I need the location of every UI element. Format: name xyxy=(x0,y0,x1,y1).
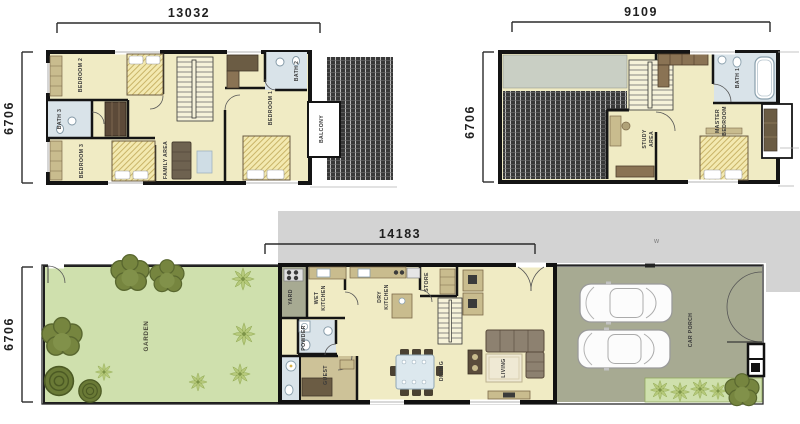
room-label-master-line2: BEDROOM xyxy=(722,106,728,136)
room-label-bath2: BATH 2 xyxy=(294,61,300,81)
dim-line-width-second-floor xyxy=(512,22,770,32)
dim-line-height-ground-floor xyxy=(22,267,33,402)
car-2 xyxy=(578,328,670,371)
meter-box xyxy=(748,344,764,376)
plan-ground-floor: w 14183 6706 xyxy=(2,211,800,406)
plan-second-floor: 9109 6706 xyxy=(463,5,799,186)
dim-width-ground-floor: 14183 xyxy=(379,227,421,241)
room-label-wet-kitchen-line2: KITCHEN xyxy=(321,285,327,311)
car-1 xyxy=(580,282,672,325)
room-label-car-porch: CAR PORCH xyxy=(688,313,694,348)
grey-overlay-right xyxy=(766,211,800,292)
stairs-ground-floor xyxy=(438,298,462,344)
room-label-master-line1: MASTER xyxy=(715,109,721,133)
dim-width-second-floor: 9109 xyxy=(624,5,658,19)
room-label-bedroom2: BEDROOM 2 xyxy=(78,58,84,93)
room-label-powder: POWDER xyxy=(301,325,307,350)
room-label-bedroom3: BEDROOM 3 xyxy=(79,144,85,179)
room-label-living: LIVING xyxy=(501,358,507,377)
room-label-dry-kitchen-line2: KITCHEN xyxy=(384,284,390,310)
dim-line-width-first-floor xyxy=(57,23,320,33)
room-label-dry-kitchen-line1: DRY xyxy=(377,291,383,303)
bay-window-second-floor xyxy=(762,104,792,158)
room-label-balcony: BALCONY xyxy=(319,115,325,143)
room-label-study-line2: AREA xyxy=(649,131,655,147)
stairs-first-floor xyxy=(177,57,213,121)
room-label-guest: GUEST xyxy=(323,365,329,385)
bath2-floor xyxy=(265,52,307,90)
dim-height-ground-floor: 6706 xyxy=(2,317,16,351)
dim-width-first-floor: 13032 xyxy=(168,6,210,20)
room-label-garden: GARDEN xyxy=(143,321,150,352)
room-label-dining: DINING xyxy=(439,361,445,381)
room-label-bath1: BATH 1 xyxy=(735,68,741,88)
dim-height-second-floor: 6706 xyxy=(463,105,477,139)
watermark: w xyxy=(653,238,660,245)
floor-plan-image: 13032 6706 xyxy=(0,0,800,424)
room-label-wet-kitchen-line1: WET xyxy=(314,291,320,304)
porch-planter xyxy=(645,374,762,406)
plan-first-floor: 13032 6706 xyxy=(2,6,397,187)
room-label-yard: YARD xyxy=(288,289,294,305)
room-label-bedroom1: BEDROOM 1 xyxy=(268,91,274,126)
room-label-bath3: BATH 3 xyxy=(57,109,63,129)
room-label-study-line1: STUDY xyxy=(642,129,648,149)
floor-plans-page: 13032 6706 xyxy=(0,0,800,424)
dim-line-height-first-floor xyxy=(22,52,33,183)
room-label-store: STORE xyxy=(424,272,430,292)
gate-post xyxy=(645,264,655,268)
dim-line-height-second-floor xyxy=(483,52,494,182)
room-label-family-area: FAMILY AREA xyxy=(163,141,169,179)
grey-overlay-band xyxy=(278,211,800,263)
dim-height-first-floor: 6706 xyxy=(2,101,16,135)
flat-roof-strip xyxy=(503,55,627,88)
